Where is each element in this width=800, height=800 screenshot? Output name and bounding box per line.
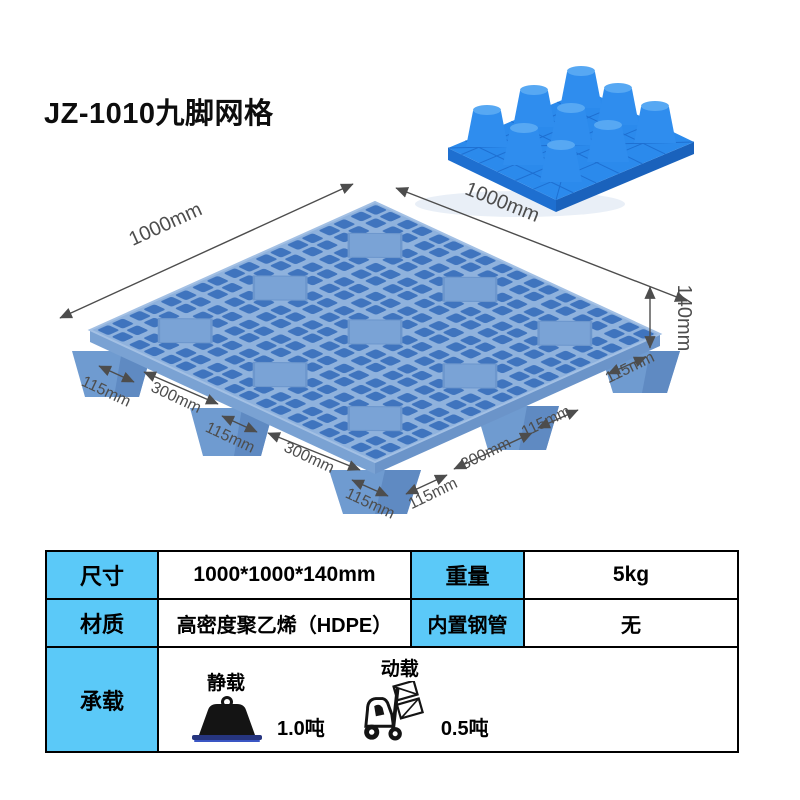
dim-label-height: 140mm (673, 285, 695, 352)
dynamic-load-group: 动载 (359, 654, 489, 743)
spec-table: 尺寸 1000*1000*140mm 重量 5kg 材质 高密度聚乙烯（HDPE… (45, 550, 739, 753)
load-value-cell: 静载 1.0吨 动载 (158, 647, 738, 752)
dim-label-top-left: 1000mm (126, 198, 206, 250)
material-label-cell: 材质 (46, 599, 158, 647)
size-label-cell: 尺寸 (46, 551, 158, 599)
weight-value-cell: 5kg (524, 551, 738, 599)
static-load-value: 1.0吨 (277, 712, 325, 743)
material-value-cell: 高密度聚乙烯（HDPE） (158, 599, 411, 647)
steel-pipe-value-cell: 无 (524, 599, 738, 647)
small-pallet-image (415, 66, 694, 217)
spec-row-size: 尺寸 1000*1000*140mm 重量 5kg (46, 551, 738, 599)
size-value-cell: 1000*1000*140mm (158, 551, 411, 599)
forklift-icon (359, 681, 433, 743)
product-illustration: 1000mm 1000mm 140mm 115mm 300mm 115mm 30… (0, 0, 800, 560)
spec-row-load: 承载 静载 1.0吨 动载 (46, 647, 738, 752)
main-pallet-image (72, 202, 680, 514)
static-load-label: 静载 (185, 668, 267, 695)
dynamic-load-value: 0.5吨 (441, 712, 489, 743)
dynamic-load-label: 动载 (359, 654, 441, 681)
spec-row-material: 材质 高密度聚乙烯（HDPE） 内置钢管 无 (46, 599, 738, 647)
weight-label-cell: 重量 (411, 551, 524, 599)
static-load-group: 静载 1.0吨 (185, 668, 325, 743)
steel-pipe-label-cell: 内置钢管 (411, 599, 524, 647)
load-label-cell: 承载 (46, 647, 158, 752)
weight-icon (185, 695, 269, 743)
